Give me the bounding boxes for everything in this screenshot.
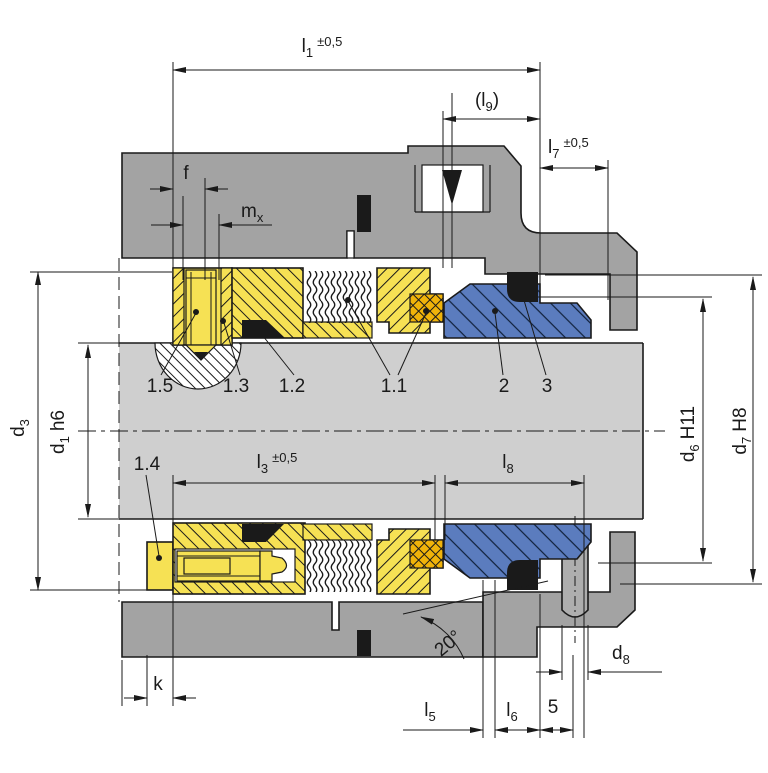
label-k: k [153,674,163,695]
lower-seal-assembly [147,523,591,594]
label-d6: d6H11 [678,406,702,462]
label-f: f [183,163,189,184]
lower-set-screw [175,549,295,582]
label-part-1-1: 1.1 [381,376,407,397]
drawing-canvas: l1±0,5 (l9) l7±0,5 f mx d3 d1h6 d6H11 d7… [0,0,768,768]
label-part-3: 3 [542,376,553,397]
spring [306,271,372,323]
lower-spring [306,540,372,592]
label-5: 5 [548,697,559,718]
seat-o-ring [507,272,538,302]
lower-face-elastomer-ring [410,540,443,568]
lower-spring-sleeve [303,524,372,540]
stop-ring [147,542,173,590]
label-d1: d1h6 [48,410,72,454]
label-d7: d7H8 [730,407,754,454]
upper-slot [347,231,354,258]
label-part-1-2: 1.2 [279,376,305,397]
label-part-2: 2 [499,376,510,397]
label-part-1-3: 1.3 [223,376,249,397]
lower-drive-pin [357,630,371,656]
label-part-1-5: 1.5 [147,376,173,397]
upper-drive-pin [357,195,371,232]
seal-sectional-drawing: l1±0,5 (l9) l7±0,5 f mx d3 d1h6 d6H11 d7… [0,0,768,768]
lower-seat-o-ring [507,560,538,590]
label-part-1-4: 1.4 [134,454,161,475]
face-elastomer-ring [410,294,443,322]
